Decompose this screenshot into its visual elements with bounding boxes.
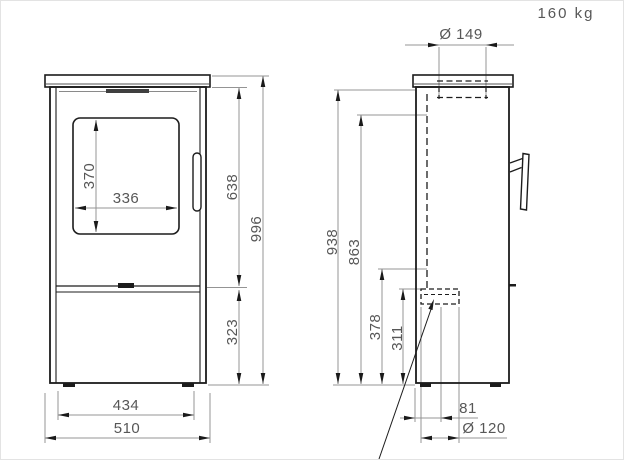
- solid-details: [63, 89, 516, 387]
- arrow-638-bottom: [237, 275, 242, 286]
- arrow-938-top: [336, 90, 341, 101]
- arrow-81-right: [441, 416, 452, 421]
- side-foot-rear: [420, 383, 431, 387]
- arrow-311-top: [401, 289, 406, 300]
- arrow-149-left: [428, 43, 439, 48]
- arrow-370-top: [94, 120, 99, 131]
- arrow-638-top: [237, 88, 242, 99]
- arrow-938-bottom: [336, 373, 341, 384]
- arrow-149-right: [486, 43, 497, 48]
- arrow-863-bottom: [359, 373, 364, 384]
- dim-label-434: 434: [113, 397, 140, 414]
- door-latch-side: [509, 284, 516, 287]
- arrow-510-right: [199, 436, 210, 441]
- handle-arm-top: [510, 159, 523, 164]
- dim-label-336: 336: [113, 190, 140, 207]
- arrow-336-left: [75, 206, 86, 211]
- front-foot-left: [63, 383, 75, 387]
- arrow-370-bottom: [94, 221, 99, 232]
- arrow-996-top: [261, 76, 266, 87]
- dim-label-311: 311: [389, 325, 406, 350]
- arrow-311-bottom: [401, 373, 406, 384]
- dim-label-510: 510: [114, 420, 141, 437]
- dim-label-863: 863: [346, 239, 363, 266]
- arrow-81-left: [404, 416, 415, 421]
- dim-label-996: 996: [248, 216, 265, 243]
- side-view: [379, 75, 529, 459]
- door-handle-front: [193, 153, 201, 211]
- side-foot-front: [490, 383, 501, 387]
- handle-arm-bottom: [510, 168, 522, 173]
- dim-label-120: Ø 120: [462, 420, 505, 437]
- arrow-336-right: [166, 206, 177, 211]
- arrow-378-top: [380, 269, 385, 280]
- arrow-378-bottom: [380, 373, 385, 384]
- arrow-323-top: [237, 290, 242, 301]
- dim-label-938: 938: [324, 229, 341, 256]
- arrow-434-left: [58, 413, 69, 418]
- arrow-120-left: [421, 436, 432, 441]
- arrow-323-bottom: [237, 373, 242, 384]
- dim-label-638: 638: [224, 174, 241, 201]
- dim-label-81: 81: [459, 400, 477, 417]
- top-plate-front: [45, 75, 210, 87]
- air-control-slot: [106, 89, 149, 93]
- dimension-arrows: [45, 43, 497, 441]
- arrow-434-right: [183, 413, 194, 418]
- stove-dimension-drawing: 160 kg Ø 149 370 336 638 996 323 434 510…: [0, 0, 624, 460]
- door-handle-side: [521, 154, 530, 211]
- arrow-510-left: [45, 436, 56, 441]
- air-intake-duct: [421, 289, 459, 304]
- arrow-863-top: [359, 115, 364, 126]
- front-foot-right: [182, 383, 194, 387]
- arrow-996-bottom: [261, 373, 266, 384]
- dim-label-378: 378: [367, 314, 384, 341]
- door-latch-front: [118, 283, 134, 288]
- top-plate-side: [413, 75, 513, 87]
- drawing-svg: 160 kg Ø 149 370 336 638 996 323 434 510…: [1, 1, 624, 460]
- dim-label-323: 323: [224, 319, 241, 346]
- weight-label: 160 kg: [537, 5, 594, 22]
- dim-label-370: 370: [81, 163, 98, 190]
- arrow-120-right: [448, 436, 459, 441]
- front-view: [45, 75, 210, 383]
- dim-label-149: Ø 149: [439, 26, 482, 43]
- stove-body-side: [416, 87, 509, 383]
